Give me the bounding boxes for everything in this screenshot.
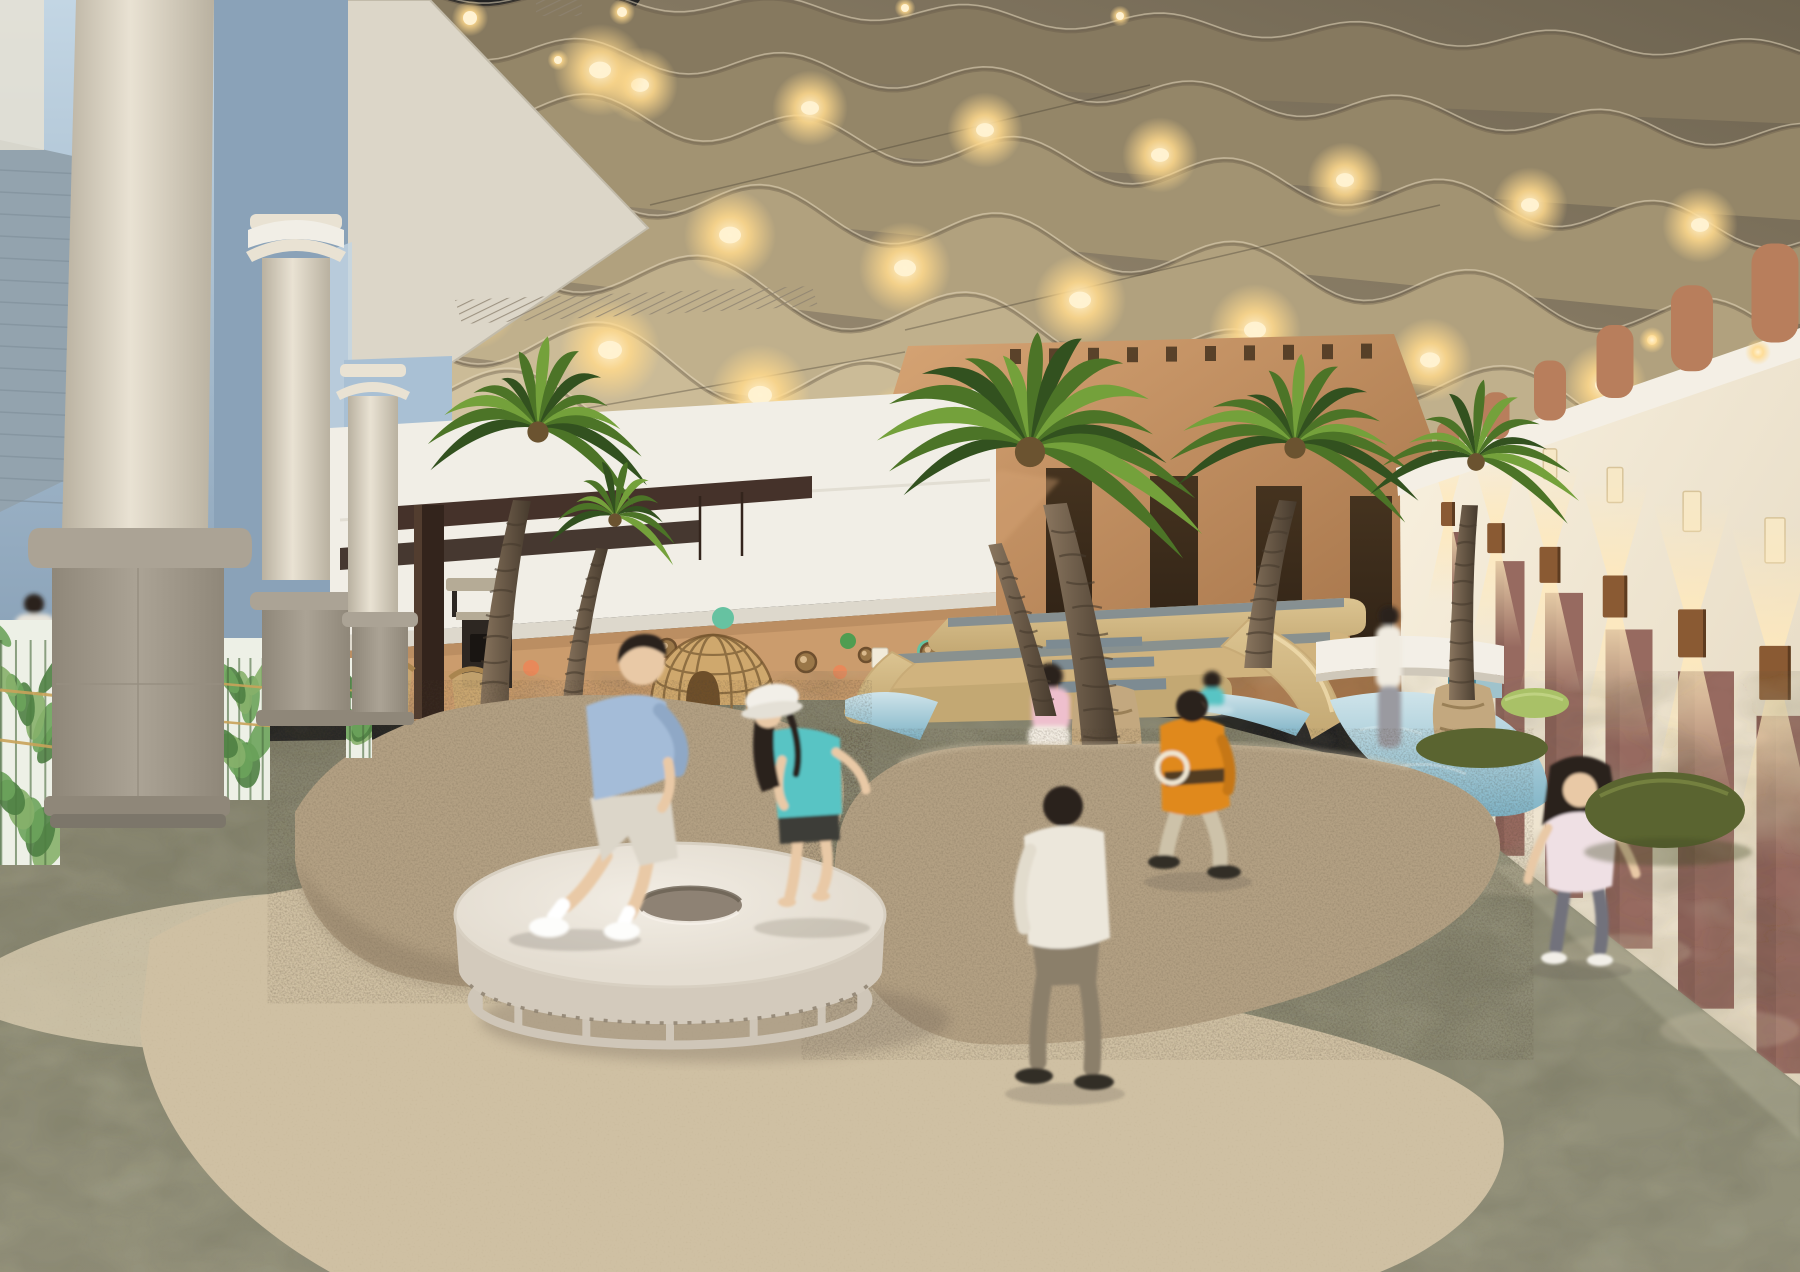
terracotta-stub [1534,361,1566,421]
downlight [617,7,627,17]
downlight [554,56,562,64]
pedestal-cap [342,612,418,627]
light-core [719,227,741,244]
parapet-slit [1205,346,1216,361]
sconce-shade [1558,547,1561,583]
sconce-shade [1624,575,1627,617]
light-core [1069,292,1091,309]
pedestal-base [256,710,356,726]
parapet-slit [1244,345,1255,360]
frond-tuft [1284,437,1305,458]
scene-canvas [0,0,1800,1272]
sconce-floor-pool [1660,1010,1800,1050]
parapet-slit [1283,345,1294,360]
bronze-sconce [1759,646,1791,700]
downlight [463,11,477,25]
sconce-shade [1788,646,1791,700]
wall-dot-teal [712,607,734,629]
playground-rendering [0,0,1800,1272]
peg-highlight [862,651,867,656]
parapet-slit [1166,347,1177,362]
terracotta-stub [1671,285,1713,371]
light-core [1521,198,1539,212]
light-core [748,386,772,404]
light-core [589,62,611,79]
frond-tuft [527,421,548,442]
wall-dot-orange [523,660,539,676]
terracotta-stub [1597,325,1634,398]
downlight [901,4,909,12]
frond-tuft [1015,437,1045,467]
parapet-slit [1361,344,1372,359]
pedestal-base [44,796,230,816]
wall-peg [859,648,873,662]
bronze-sconce [1540,547,1561,583]
bronze-sconce [1603,575,1628,617]
light-core [598,341,622,359]
downlight [1116,12,1124,20]
light-core [1691,218,1709,232]
light-core [1336,173,1354,187]
parapet-slit [1322,344,1333,359]
pouf-olive-large [1585,772,1745,848]
pedestal [262,610,350,714]
wall-dot-green [840,633,856,649]
wall-peg [796,652,816,672]
light-core [1151,148,1169,162]
bronze-sconce [1678,609,1706,657]
sconce-shade [1452,502,1455,526]
jacket [1160,718,1230,815]
light-core [1420,352,1440,367]
light-core [801,101,819,115]
exterior-corner [0,0,44,150]
pedestal-cap [250,592,360,610]
pouf-olive-flat [1416,728,1548,768]
peg-highlight [800,656,807,663]
sconce-shade [1502,523,1505,553]
sconce-shade [1703,609,1706,657]
parapet-slit [1127,347,1138,362]
light-core [894,260,916,277]
frond-tuft [1467,453,1485,471]
light-core [976,123,994,137]
light-core [1244,322,1266,339]
pedestal-cap [28,528,252,568]
pedestal-base [346,712,414,725]
wall-dot-orange [833,665,847,679]
peg-highlight [925,647,931,653]
frond-tuft [608,513,621,526]
pedestal [352,627,408,715]
jacket [1024,826,1110,949]
ceiling-vent [536,0,582,16]
terracotta-stub [1752,243,1799,342]
